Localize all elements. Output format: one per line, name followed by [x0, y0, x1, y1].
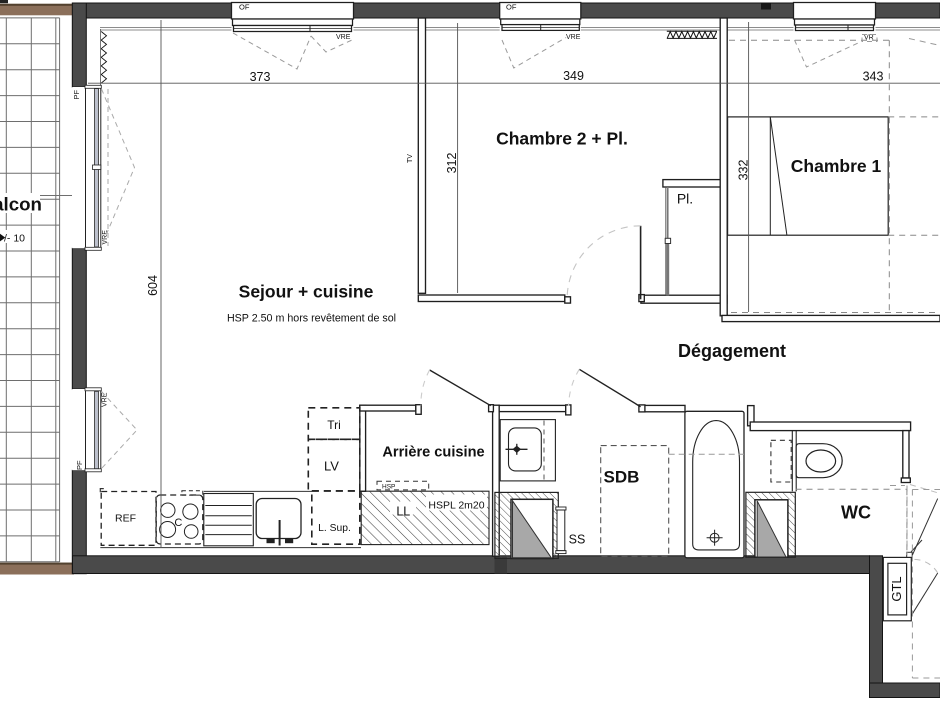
svg-text:Sejour + cuisine: Sejour + cuisine — [239, 282, 374, 302]
svg-text:604: 604 — [146, 275, 160, 296]
svg-text:SS: SS — [569, 533, 586, 547]
svg-text:/- 10: /- 10 — [4, 233, 25, 245]
svg-text:332: 332 — [737, 160, 751, 181]
svg-text:WC: WC — [841, 503, 871, 523]
svg-text:VRE: VRE — [566, 34, 581, 41]
svg-text:Chambre 1: Chambre 1 — [791, 156, 882, 176]
svg-text:L. Sup.: L. Sup. — [318, 523, 351, 534]
svg-text:373: 373 — [250, 70, 271, 84]
svg-text:Tri: Tri — [327, 418, 341, 432]
svg-text:TV: TV — [407, 154, 414, 163]
svg-text:HSP: HSP — [382, 484, 395, 491]
svg-text:OF: OF — [506, 3, 517, 12]
svg-text:GTL: GTL — [889, 576, 904, 601]
svg-text:312: 312 — [445, 153, 459, 174]
svg-text:LV: LV — [324, 459, 339, 474]
svg-text:PF: PF — [72, 89, 81, 99]
svg-text:VRE: VRE — [336, 34, 351, 41]
svg-text:SDB: SDB — [604, 468, 640, 487]
svg-text:HSP 2.50 m hors revêtement de: HSP 2.50 m hors revêtement de sol — [227, 313, 396, 325]
svg-text:Chambre 2 + Pl.: Chambre 2 + Pl. — [496, 129, 628, 149]
svg-text:LL: LL — [396, 505, 410, 519]
svg-text:Pl.: Pl. — [677, 191, 693, 207]
svg-text:PF: PF — [75, 460, 84, 470]
svg-text:349: 349 — [563, 69, 584, 83]
svg-text:REF: REF — [115, 513, 136, 525]
svg-text:Dégagement: Dégagement — [678, 341, 786, 361]
svg-text:Arrière cuisine: Arrière cuisine — [382, 445, 484, 461]
svg-text:VRE: VRE — [102, 392, 109, 407]
svg-text:HSPL 2m20: HSPL 2m20 — [428, 500, 484, 512]
svg-text:C: C — [174, 517, 182, 529]
svg-text:Balcon: Balcon — [0, 194, 42, 215]
svg-text:OF: OF — [239, 3, 250, 12]
svg-text:343: 343 — [863, 70, 884, 84]
